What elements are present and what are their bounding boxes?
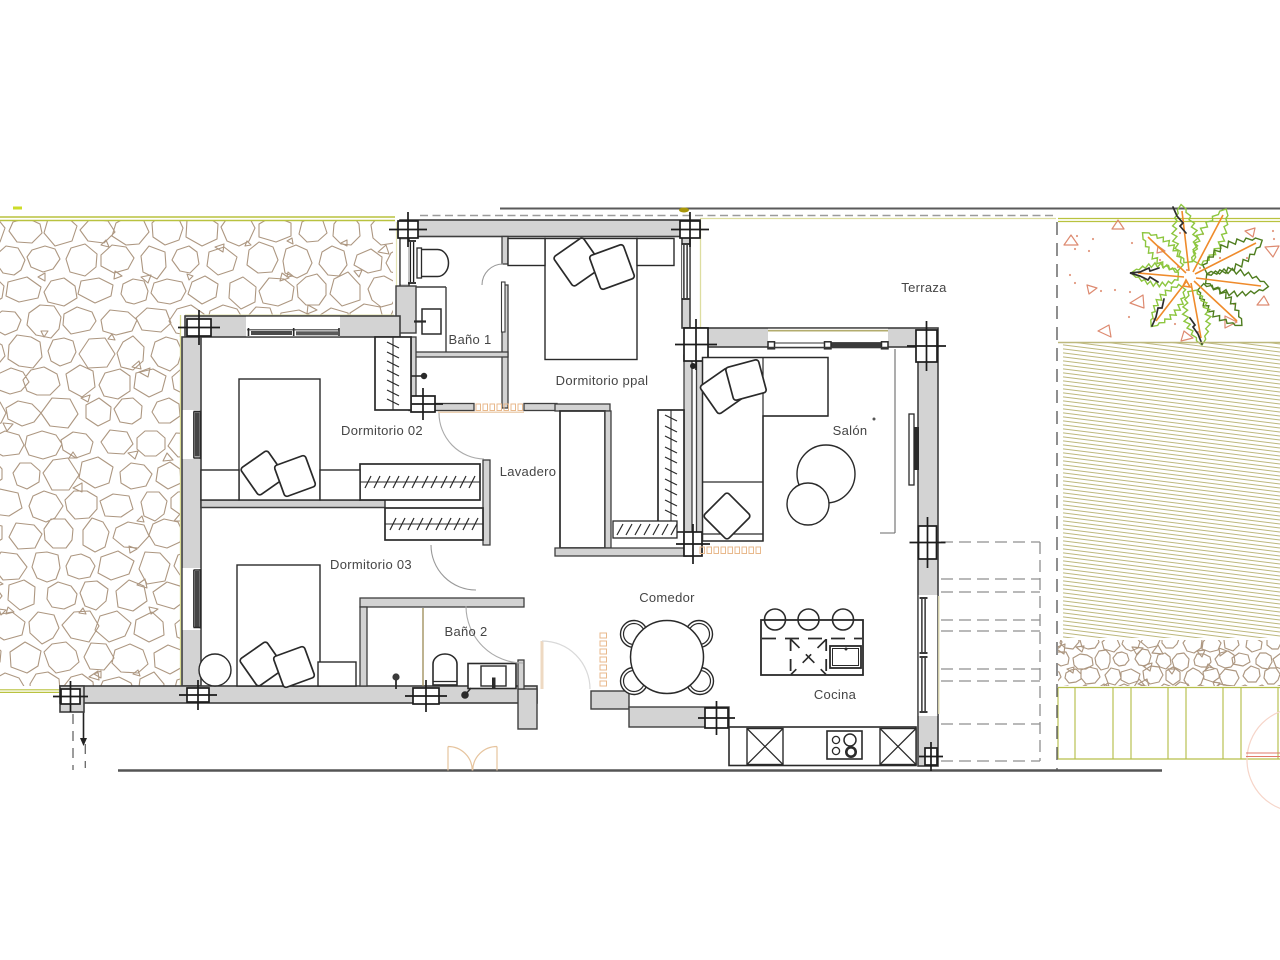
- svg-text:Baño 2: Baño 2: [444, 624, 487, 639]
- svg-text:Baño 1: Baño 1: [448, 332, 491, 347]
- svg-text:Dormitorio 02: Dormitorio 02: [341, 423, 423, 438]
- svg-text:Terraza: Terraza: [901, 280, 947, 295]
- svg-text:Cocina: Cocina: [814, 687, 857, 702]
- svg-text:Lavadero: Lavadero: [500, 464, 557, 479]
- svg-text:Salón: Salón: [833, 423, 868, 438]
- svg-text:Dormitorio 03: Dormitorio 03: [330, 557, 412, 572]
- svg-text:Comedor: Comedor: [639, 590, 695, 605]
- svg-text:Dormitorio ppal: Dormitorio ppal: [556, 373, 649, 388]
